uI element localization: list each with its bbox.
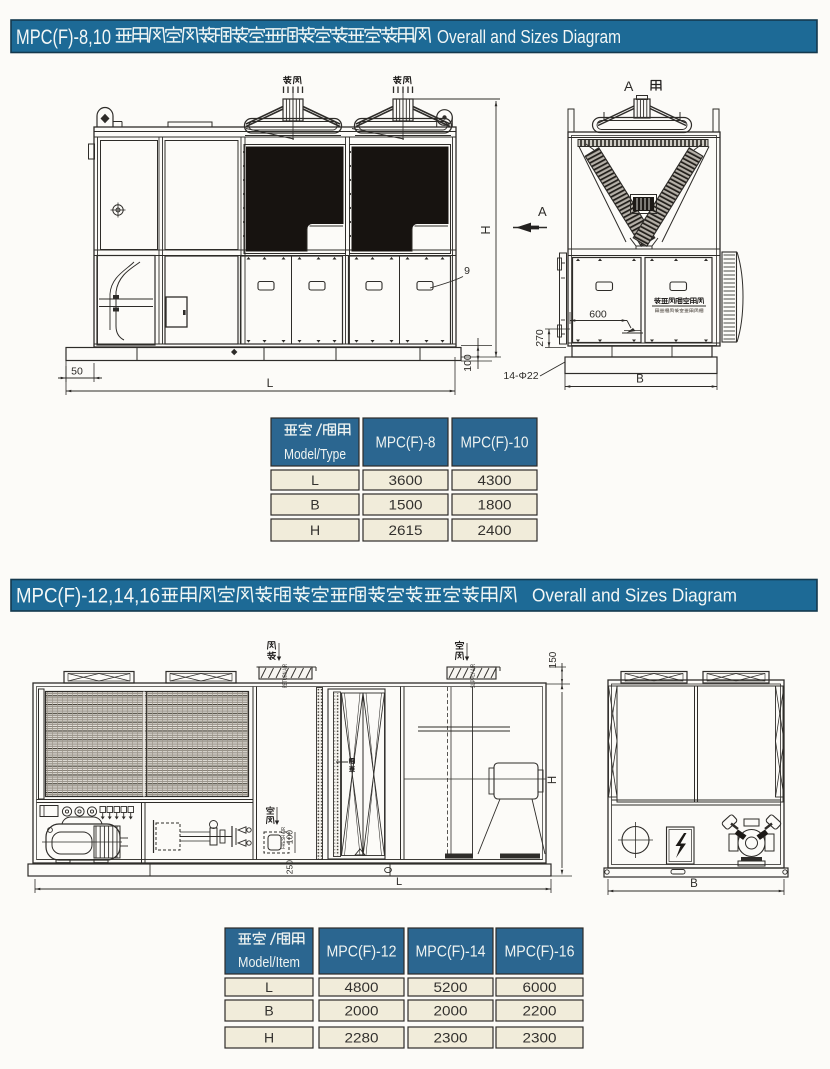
svg-text:A: A [624, 78, 634, 94]
svg-text:MPC(F)-12: MPC(F)-12 [327, 944, 397, 961]
svg-text:3600: 3600 [389, 472, 423, 488]
svg-text:600: 600 [589, 309, 607, 321]
svg-text:B: B [636, 374, 644, 386]
svg-text:L: L [311, 472, 319, 488]
svg-text:100: 100 [285, 830, 295, 844]
svg-text:1800: 1800 [478, 497, 512, 513]
svg-text:100: 100 [462, 354, 474, 372]
svg-text:RETURN AIR: RETURN AIR [282, 664, 289, 688]
svg-text:B: B [690, 878, 698, 890]
svg-text:2300: 2300 [523, 1030, 557, 1046]
svg-text:1500: 1500 [389, 497, 423, 513]
svg-text:MPC(F)-12,14,16: MPC(F)-12,14,16 [16, 585, 160, 608]
svg-text:B: B [264, 1003, 273, 1019]
svg-text:H: H [264, 1030, 274, 1046]
svg-text:150: 150 [548, 651, 559, 668]
svg-text:B: B [310, 497, 319, 513]
svg-text:6000: 6000 [523, 979, 557, 995]
svg-text:4800: 4800 [345, 979, 379, 995]
svg-text:5200: 5200 [434, 979, 468, 995]
svg-text:2280: 2280 [345, 1030, 379, 1046]
svg-text:2200: 2200 [523, 1003, 557, 1019]
svg-text:2000: 2000 [345, 1003, 379, 1019]
svg-text:A: A [538, 204, 547, 219]
svg-text:H: H [310, 522, 320, 538]
svg-text:Model/Type: Model/Type [284, 446, 346, 463]
svg-text:Overall and Sizes Diagram: Overall and Sizes Diagram [532, 585, 737, 606]
svg-text:2615: 2615 [389, 522, 423, 538]
svg-text:MPC(F)-8,10: MPC(F)-8,10 [16, 26, 111, 49]
svg-text:L: L [267, 376, 274, 390]
svg-text:MPC(F)-14: MPC(F)-14 [416, 944, 486, 961]
svg-text:L: L [265, 979, 273, 995]
svg-text:MPC(F)-8: MPC(F)-8 [376, 435, 436, 452]
svg-text:MPC(F)-10: MPC(F)-10 [461, 435, 529, 452]
svg-text:MPC(F)-16: MPC(F)-16 [505, 944, 575, 961]
svg-text:SUPPLY AIR: SUPPLY AIR [470, 664, 477, 688]
svg-text:H: H [479, 225, 493, 234]
svg-text:250: 250 [285, 860, 295, 874]
svg-text:H: H [547, 776, 559, 784]
svg-text:9: 9 [464, 265, 470, 277]
svg-text:14-Φ22: 14-Φ22 [503, 370, 538, 382]
svg-text:Model/Item: Model/Item [238, 954, 300, 971]
svg-text:L: L [396, 876, 402, 888]
svg-text:270: 270 [534, 329, 546, 347]
svg-text:2400: 2400 [478, 522, 512, 538]
svg-text:2000: 2000 [434, 1003, 468, 1019]
svg-text:50: 50 [71, 366, 83, 378]
svg-text:2300: 2300 [434, 1030, 468, 1046]
svg-text:4300: 4300 [478, 472, 512, 488]
svg-text:Overall and Sizes Diagram: Overall and Sizes Diagram [437, 26, 621, 47]
